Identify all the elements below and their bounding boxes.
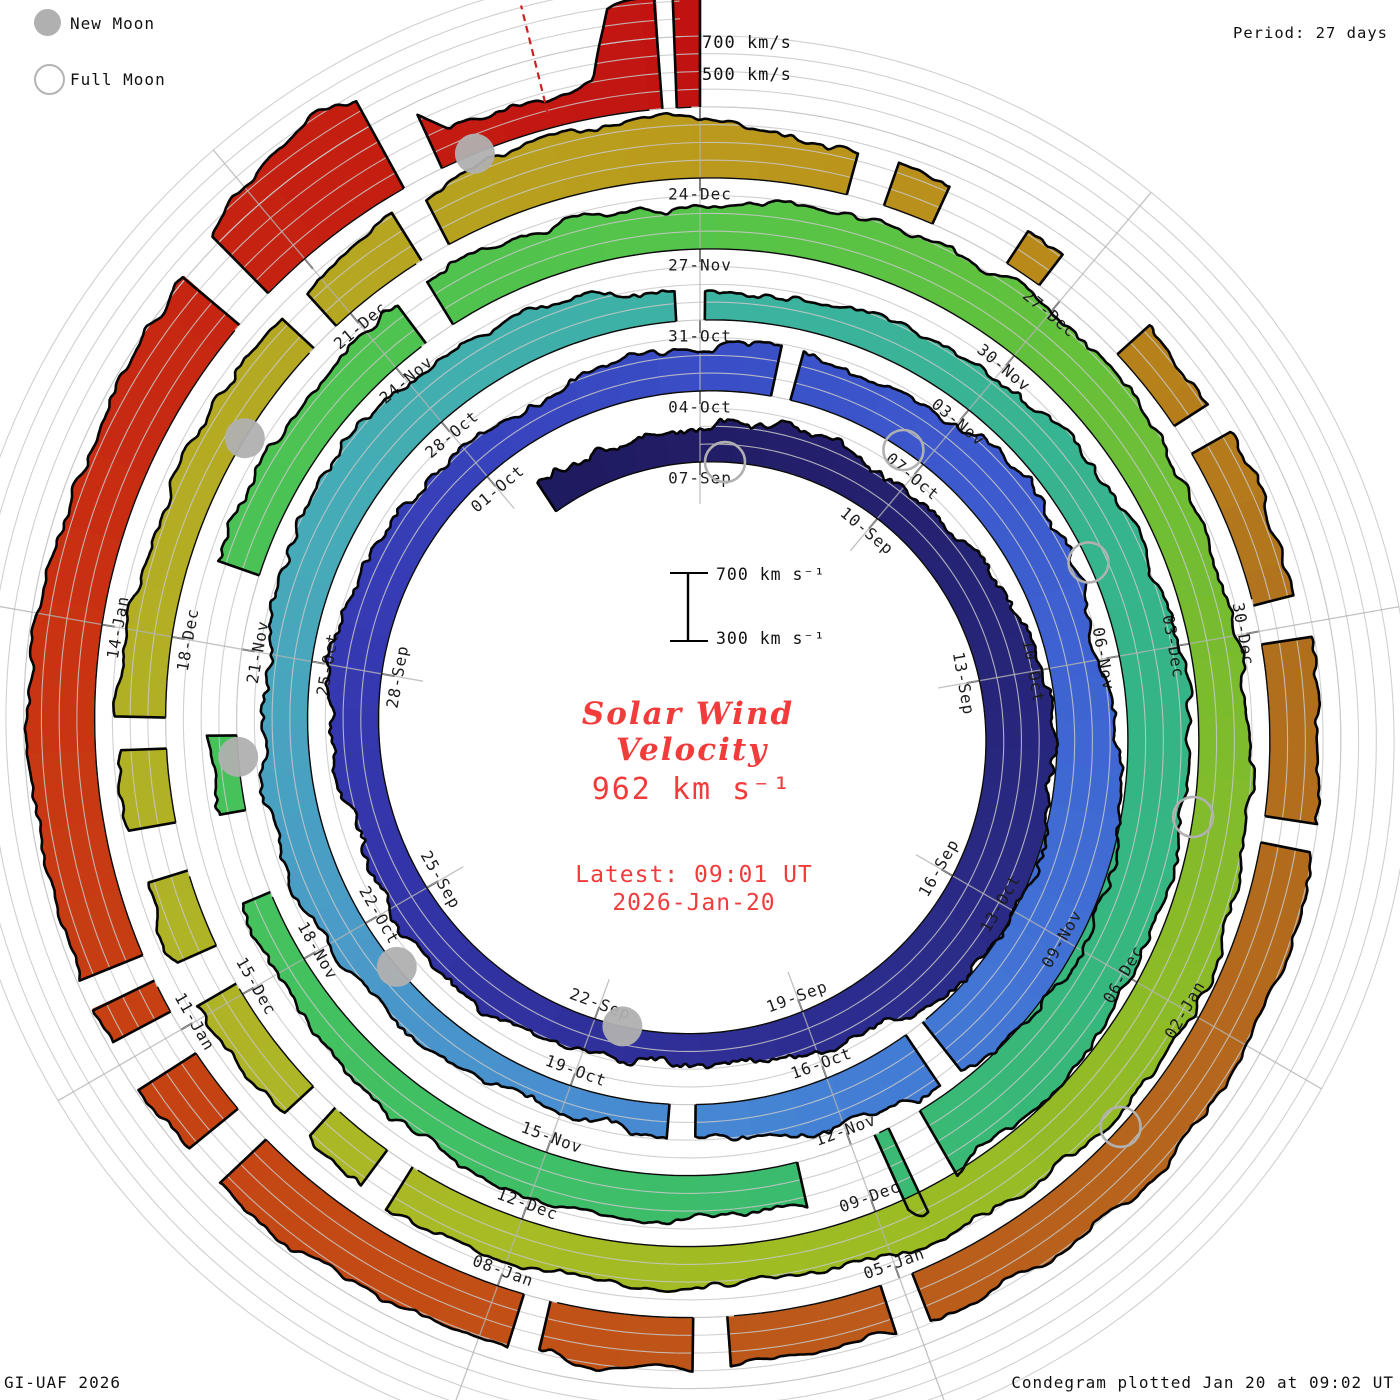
spiral-band-segment: [1192, 654, 1246, 719]
chart-title-line2: Velocity: [616, 732, 768, 768]
latest-date: 2026-Jan-20: [612, 890, 775, 916]
plotted-timestamp: Condegram plotted Jan 20 at 09:02 UT: [1011, 1373, 1394, 1392]
spiral-band-segment: [581, 1165, 644, 1222]
spiral-band-segment: [1198, 717, 1255, 781]
spiral-band-segment: [1269, 708, 1319, 780]
spiral-band-segment: [740, 342, 782, 396]
spiral-band-segment: [118, 761, 176, 831]
new-moon-marker: [602, 1006, 642, 1046]
spiral-band-segment: [637, 1173, 695, 1224]
full-moon-icon: [34, 64, 65, 95]
spiral-band-segment: [613, 351, 661, 403]
new-moon-marker: [455, 134, 495, 174]
new-moon-marker: [218, 737, 258, 777]
latest-time: Latest: 09:01 UT: [575, 862, 813, 888]
chart-title-line1: Solar Wind: [582, 696, 794, 732]
spiral-band-segment: [552, 1231, 622, 1282]
scale-300-label: 300 km s⁻¹: [716, 629, 825, 648]
spiral-band-segment: [333, 749, 386, 794]
grid-500-label: 500 km/s: [702, 65, 792, 85]
velocity-fill-layer: [25, 0, 1320, 1372]
date-label: 27-Nov: [668, 256, 732, 275]
current-speed-value: 962 km s⁻¹: [592, 772, 793, 807]
spiral-band-segment: [260, 766, 319, 820]
legend-full-moon-label: Full Moon: [70, 70, 166, 89]
spiral-band-segment: [700, 341, 745, 392]
baseline-outline: [677, 107, 692, 108]
spiral-band-segment: [572, 0, 649, 121]
spiral-band-segment: [705, 291, 756, 322]
date-label: 24-Dec: [668, 185, 732, 204]
period-label: Period: 27 days: [1233, 24, 1388, 42]
spiral-band-segment: [616, 1242, 682, 1291]
spiral-band-segment: [717, 201, 781, 253]
condegram-plot: 07-Sep10-Sep13-Sep16-Sep19-Sep22-Sep25-S…: [0, 0, 1400, 1400]
spiral-band-segment: [30, 598, 104, 681]
spiral-band-segment: [123, 584, 180, 656]
scale-700-label: 700 km s⁻¹: [716, 565, 825, 584]
new-moon-marker: [225, 418, 265, 458]
spiral-band-segment: [618, 1314, 693, 1372]
spiral-band-segment: [329, 709, 380, 752]
spiral-band-segment: [139, 1053, 238, 1148]
scalebar-layer: [670, 573, 708, 641]
spiral-band-segment: [1262, 637, 1320, 710]
date-label: 04-Oct: [668, 398, 732, 417]
date-label: 18-Dec: [173, 607, 203, 673]
spiral-band-segment: [261, 720, 310, 771]
spiral-band-segment: [261, 669, 310, 721]
spiral-band-segment: [658, 205, 719, 251]
grid-700-label: 700 km/s: [702, 33, 792, 53]
new-moon-marker: [377, 947, 417, 987]
new-moon-icon: [34, 9, 61, 36]
spiral-band-segment: [622, 113, 694, 184]
date-label: 28-Sep: [383, 644, 413, 710]
legend-new-moon-label: New Moon: [70, 14, 155, 33]
date-label: 07-Sep: [668, 469, 732, 488]
credit-label: GI-UAF 2026: [4, 1373, 121, 1392]
